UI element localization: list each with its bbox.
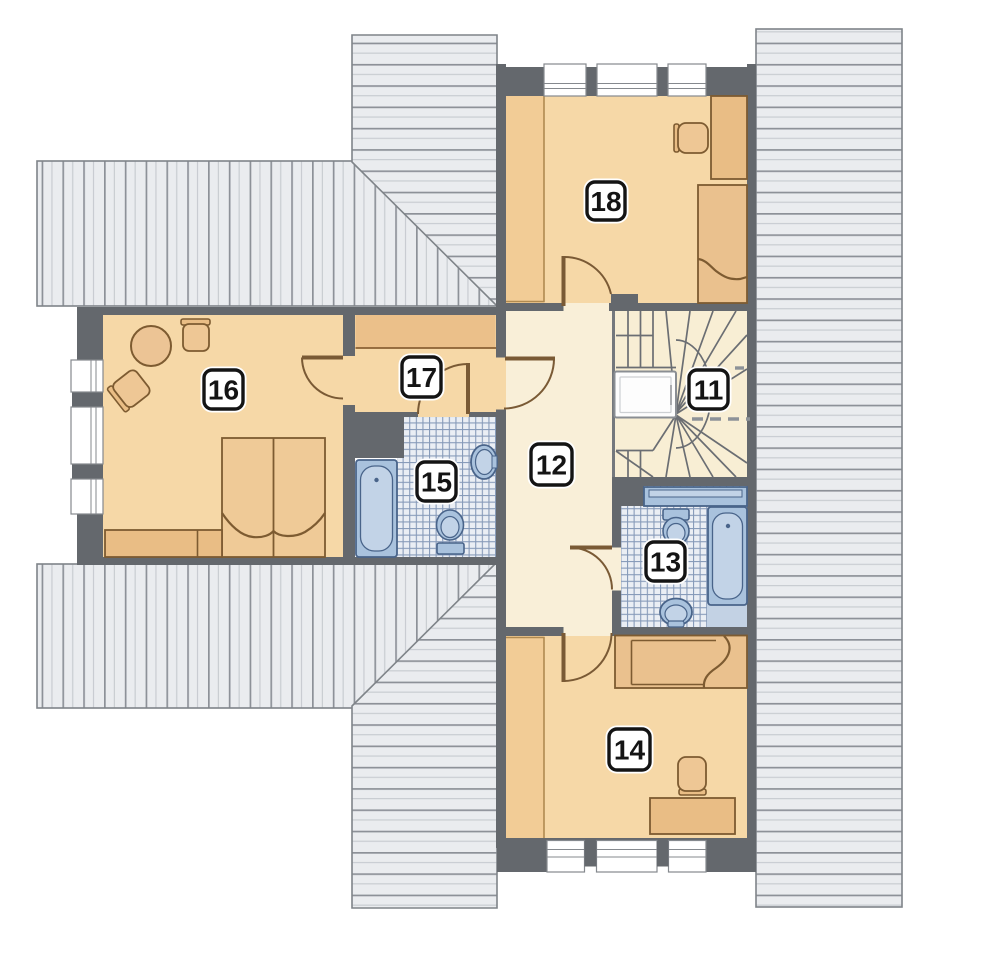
svg-text:13: 13 <box>650 547 681 578</box>
svg-text:14: 14 <box>614 735 646 766</box>
svg-text:18: 18 <box>590 186 621 217</box>
svg-text:12: 12 <box>536 450 567 481</box>
svg-text:16: 16 <box>208 375 239 406</box>
svg-text:15: 15 <box>421 467 452 498</box>
svg-text:11: 11 <box>694 375 724 406</box>
svg-text:17: 17 <box>406 362 437 393</box>
